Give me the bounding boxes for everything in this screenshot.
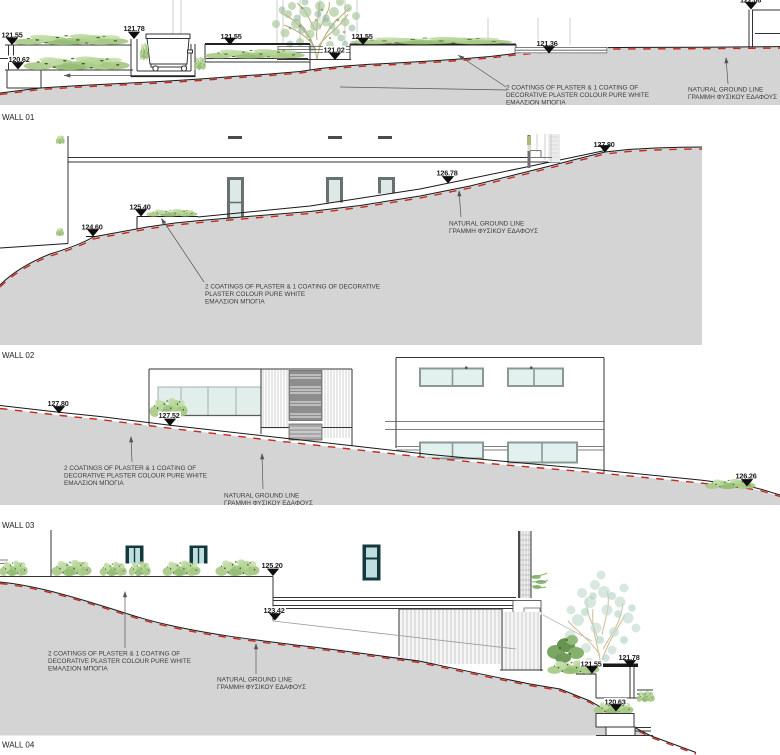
svg-text:ΕΜΑΛΣΙΟΝ ΜΠΟΓΙΑ: ΕΜΑΛΣΙΟΝ ΜΠΟΓΙΑ <box>205 299 265 306</box>
svg-text:PLASTER COLOUR PURE WHITE: PLASTER COLOUR PURE WHITE <box>205 291 305 298</box>
svg-text:ΓΡΑΜΜΗ ΦΥΣΙΚΟΥ ΕΔΑΦΟΥΣ: ΓΡΑΜΜΗ ΦΥΣΙΚΟΥ ΕΔΑΦΟΥΣ <box>688 94 777 101</box>
svg-text:DECORATIVE PLASTER COLOUR PURE: DECORATIVE PLASTER COLOUR PURE WHITE <box>64 473 207 480</box>
svg-text:2 COATINGS OF PLASTER & 1 COAT: 2 COATINGS OF PLASTER & 1 COATING OF <box>64 465 196 472</box>
svg-text:ΕΜΑΛΣΙΟΝ ΜΠΟΓΙΑ: ΕΜΑΛΣΙΟΝ ΜΠΟΓΙΑ <box>64 480 124 487</box>
svg-text:ΓΡΑΜΜΗ ΦΥΣΙΚΟΥ ΕΔΑΦΟΥΣ: ΓΡΑΜΜΗ ΦΥΣΙΚΟΥ ΕΔΑΦΟΥΣ <box>224 500 313 507</box>
svg-text:NATURAL GROUND LINE: NATURAL GROUND LINE <box>449 221 524 228</box>
svg-text:WALL 04: WALL 04 <box>2 741 35 750</box>
svg-text:ΓΡΑΜΜΗ ΦΥΣΙΚΟΥ ΕΔΑΦΟΥΣ: ΓΡΑΜΜΗ ΦΥΣΙΚΟΥ ΕΔΑΦΟΥΣ <box>449 228 538 235</box>
svg-text:ΓΡΑΜΜΗ ΦΥΣΙΚΟΥ ΕΔΑΦΟΥΣ: ΓΡΑΜΜΗ ΦΥΣΙΚΟΥ ΕΔΑΦΟΥΣ <box>217 684 306 691</box>
svg-text:NATURAL GROUND LINE: NATURAL GROUND LINE <box>224 493 299 500</box>
svg-text:DECORATIVE PLASTER COLOUR PURE: DECORATIVE PLASTER COLOUR PURE WHITE <box>506 92 649 99</box>
svg-text:2 COATINGS OF PLASTER & 1 COAT: 2 COATINGS OF PLASTER & 1 COATING OF <box>48 651 180 658</box>
svg-text:ΕΜΑΛΣΙΟΝ ΜΠΟΓΙΑ: ΕΜΑΛΣΙΟΝ ΜΠΟΓΙΑ <box>48 666 108 673</box>
svg-text:NATURAL GROUND LINE: NATURAL GROUND LINE <box>688 87 763 94</box>
svg-text:WALL 03: WALL 03 <box>2 521 35 530</box>
svg-text:DECORATIVE PLASTER COLOUR PURE: DECORATIVE PLASTER COLOUR PURE WHITE <box>48 658 191 665</box>
svg-text:WALL 02: WALL 02 <box>2 351 35 360</box>
svg-text:WALL 01: WALL 01 <box>2 113 35 122</box>
svg-text:2 COATINGS OF PLASTER & 1 COAT: 2 COATINGS OF PLASTER & 1 COATING OF <box>506 85 638 92</box>
svg-text:2 COATINGS OF PLASTER & 1 COAT: 2 COATINGS OF PLASTER & 1 COATING OF DEC… <box>205 284 380 291</box>
svg-text:NATURAL GROUND LINE: NATURAL GROUND LINE <box>217 677 292 684</box>
svg-text:ΕΜΑΛΣΙΟΝ ΜΠΟΓΙΑ: ΕΜΑΛΣΙΟΝ ΜΠΟΓΙΑ <box>506 100 566 107</box>
